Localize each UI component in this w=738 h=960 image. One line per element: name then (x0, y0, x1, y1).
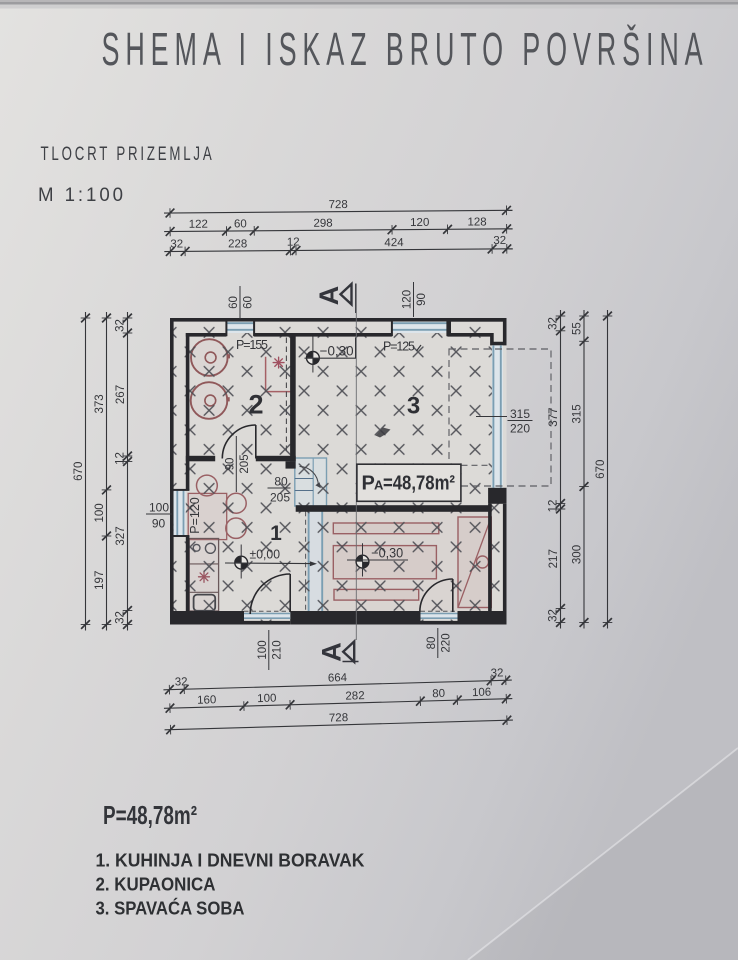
svg-text:TLOCRT PRIZEMLJA: TLOCRT PRIZEMLJA (41, 144, 215, 165)
svg-text:160: 160 (197, 694, 217, 707)
svg-text:±0,00: ±0,00 (250, 546, 281, 561)
svg-text:228: 228 (228, 238, 247, 250)
svg-text:300: 300 (571, 545, 583, 564)
svg-text:1. KUHINJA I DNEVNI BORAVAK: 1. KUHINJA I DNEVNI BORAVAK (96, 851, 365, 871)
svg-text:3: 3 (407, 393, 420, 420)
svg-text:32: 32 (175, 676, 188, 688)
svg-text:100: 100 (257, 693, 277, 706)
svg-text:32: 32 (493, 235, 506, 247)
svg-text:80: 80 (426, 637, 438, 650)
svg-text:122: 122 (189, 219, 208, 231)
svg-text:60: 60 (234, 218, 247, 230)
svg-text:120: 120 (410, 217, 429, 229)
svg-text:282: 282 (345, 690, 365, 703)
svg-text:60: 60 (228, 296, 240, 309)
svg-text:90: 90 (224, 458, 236, 471)
svg-text:100: 100 (257, 640, 269, 659)
svg-text:128: 128 (467, 216, 486, 228)
svg-text:P=48,78m²: P=48,78m² (103, 800, 197, 830)
svg-text:=48,78m²: =48,78m² (383, 473, 455, 495)
svg-text:670: 670 (73, 462, 85, 481)
svg-text:12: 12 (115, 452, 127, 465)
svg-text:90: 90 (152, 517, 166, 531)
svg-text:670: 670 (595, 460, 607, 479)
svg-text:424: 424 (384, 237, 404, 249)
svg-text:60: 60 (243, 296, 255, 309)
svg-text:728: 728 (329, 199, 348, 211)
svg-text:32: 32 (548, 317, 560, 330)
svg-text:55: 55 (571, 322, 583, 335)
svg-text:P=120: P=120 (188, 497, 202, 534)
svg-text:A: A (314, 286, 344, 306)
svg-text:12: 12 (548, 500, 560, 513)
svg-text:32: 32 (548, 609, 560, 622)
svg-text:12: 12 (287, 236, 300, 248)
svg-text:2. KUPAONICA: 2. KUPAONICA (96, 875, 216, 895)
svg-text:32: 32 (115, 319, 127, 332)
svg-text:327: 327 (115, 526, 127, 545)
svg-text:120: 120 (402, 290, 414, 309)
svg-text:220: 220 (510, 422, 530, 436)
svg-text:197: 197 (94, 571, 106, 590)
svg-text:315: 315 (510, 407, 530, 421)
svg-text:664: 664 (328, 672, 348, 685)
svg-text:80: 80 (432, 688, 445, 700)
svg-text:80: 80 (274, 475, 288, 489)
svg-text:298: 298 (313, 218, 332, 230)
svg-text:728: 728 (329, 712, 349, 725)
svg-text:32: 32 (170, 238, 183, 250)
svg-text:1: 1 (270, 522, 282, 545)
svg-text:P: P (362, 473, 375, 495)
svg-text:SHEMA I ISKAZ BRUTO POVRŠINA: SHEMA I ISKAZ BRUTO POVRŠINA (102, 23, 709, 75)
svg-text:217: 217 (548, 549, 560, 568)
svg-text:−0,30: −0,30 (320, 343, 354, 358)
svg-text:32: 32 (491, 667, 504, 679)
svg-text:90: 90 (416, 293, 428, 306)
svg-text:32: 32 (115, 611, 127, 624)
svg-text:106: 106 (472, 687, 492, 700)
svg-text:P=155: P=155 (236, 338, 268, 352)
svg-text:2: 2 (248, 390, 263, 420)
svg-text:−0,30: −0,30 (371, 545, 403, 560)
svg-text:210: 210 (271, 640, 283, 659)
svg-text:100: 100 (149, 501, 169, 515)
svg-text:315: 315 (571, 404, 583, 423)
svg-text:100: 100 (94, 503, 106, 522)
svg-text:3. SPAVAĆA SOBA: 3. SPAVAĆA SOBA (96, 898, 245, 919)
svg-text:205: 205 (239, 454, 251, 473)
svg-text:267: 267 (115, 385, 127, 404)
svg-text:377: 377 (548, 408, 560, 427)
svg-text:373: 373 (94, 394, 106, 413)
svg-text:P=125: P=125 (383, 340, 415, 354)
svg-text:M 1:100: M 1:100 (38, 185, 126, 206)
svg-text:205: 205 (270, 491, 290, 505)
svg-text:220: 220 (440, 633, 452, 652)
